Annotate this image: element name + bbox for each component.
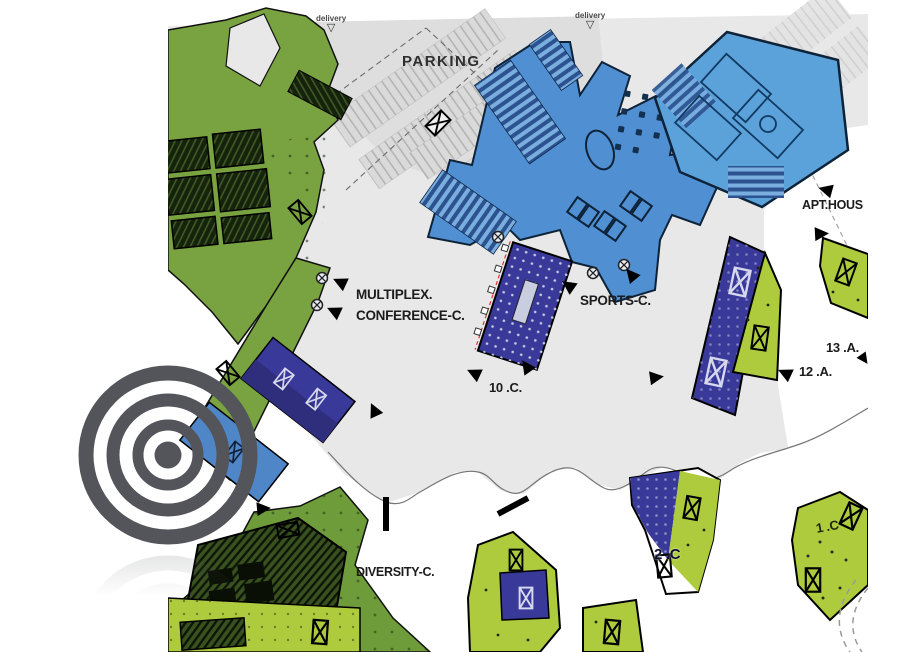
multiplex-label-line1: MULTIPLEX. [356, 284, 465, 305]
bullseye-reflection [68, 545, 268, 605]
building-10c-label: 10 .C. [489, 381, 522, 395]
multiplex-label-line2: CONFERENCE-C. [356, 305, 465, 326]
parking-label: PARKING [402, 54, 481, 71]
delivery-label-right: delivery ▽ [575, 12, 605, 31]
bullseye-target-icon [68, 355, 268, 555]
lime-building-south-small [583, 600, 643, 652]
apt-house-label: APT.HOUS [802, 199, 863, 213]
building-12a-label: 12 .A. [799, 365, 832, 379]
masterplan-drawing [168, 0, 868, 652]
lime-band-building [168, 598, 360, 652]
sports-center-label: SPORTS-C. [580, 294, 651, 309]
diversity-center-label: DIVERSITY-C. [356, 566, 434, 580]
masterplan-map [168, 0, 868, 652]
building-13a-label: 13 .A. [826, 341, 859, 355]
site-plan-page: delivery ▽ delivery ▽ PARKING MULTIPLEX.… [0, 0, 900, 652]
delivery-arrow-icon: ▽ [586, 20, 594, 31]
multiplex-conference-label: MULTIPLEX. CONFERENCE-C. [356, 284, 465, 326]
building-2c-label: 2 .C [654, 547, 680, 564]
page-right-margin [868, 0, 900, 652]
delivery-arrow-icon: ▽ [327, 23, 335, 34]
delivery-label-left: delivery ▽ [316, 15, 346, 34]
bullseye-rings [68, 355, 268, 555]
